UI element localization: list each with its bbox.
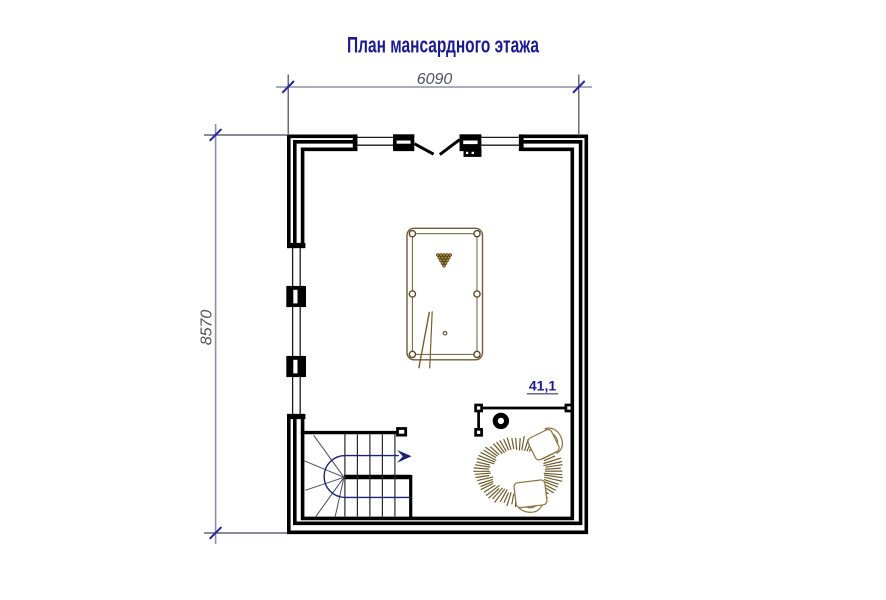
svg-text:План мансардного этажа: План мансардного этажа: [347, 33, 540, 58]
svg-text:6090: 6090: [417, 71, 453, 88]
svg-text:8570: 8570: [199, 310, 216, 346]
svg-text:41,1: 41,1: [529, 378, 556, 394]
